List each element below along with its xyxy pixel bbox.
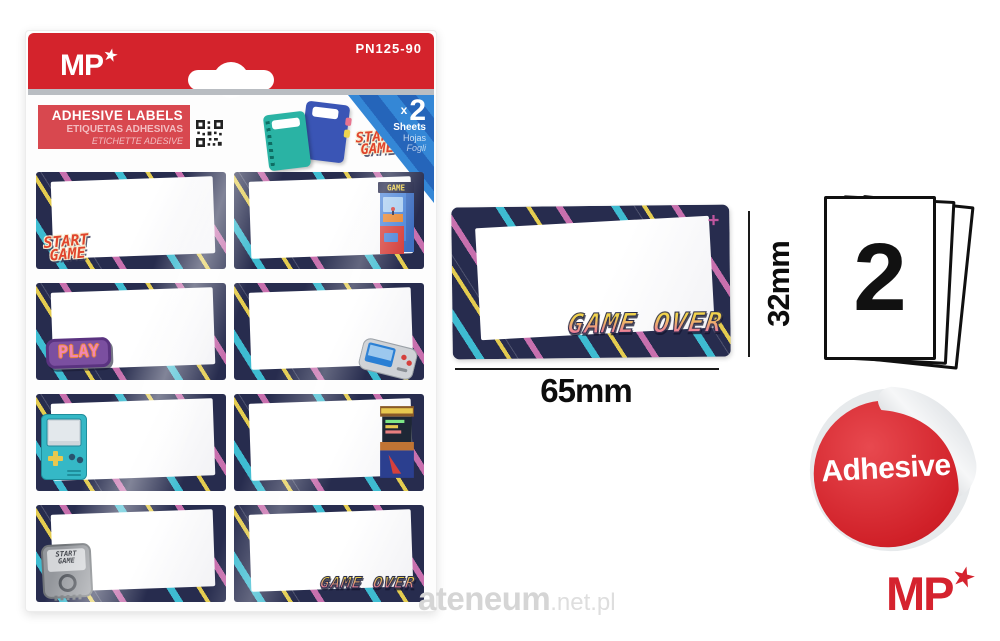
game-over-detail-logo: GAME OVER <box>565 308 724 341</box>
package: MP★ PN125-90 ADHESIVE LABELS ETIQUETAS A… <box>25 30 437 612</box>
plus-icon: + <box>708 210 720 233</box>
qr-code-icon <box>196 120 223 147</box>
header-band: MP★ PN125-90 <box>28 33 434 89</box>
game-over-label-logo: GAME OVER <box>319 573 417 592</box>
svg-text:GAME: GAME <box>387 184 406 193</box>
height-dimension-line <box>748 211 750 357</box>
label-game-over: GAME OVER <box>234 505 424 602</box>
gameboy-icon <box>41 414 87 480</box>
brand-text: MP <box>60 49 103 82</box>
label-play: PLAY <box>36 283 226 380</box>
title-it: ETICHETTE ADESIVE <box>38 136 183 146</box>
console-vents <box>54 594 82 600</box>
label-start-game: START GAME <box>36 172 226 269</box>
label-gameboy <box>36 394 226 491</box>
title-en: ADHESIVE LABELS <box>38 108 183 123</box>
product-photo: MP★ PN125-90 ADHESIVE LABELS ETIQUETAS A… <box>0 0 1000 641</box>
labels-sheet: START GAME GAME <box>36 172 424 602</box>
brand-star-icon: ★ <box>102 45 118 65</box>
width-dimension-line <box>455 368 719 370</box>
retro-console-icon: START GAME <box>41 543 94 600</box>
width-dimension: 65mm <box>452 372 720 410</box>
notebook-tab <box>343 129 350 138</box>
play-button-logo: PLAY <box>45 337 111 369</box>
label-arcade-blue: GAME <box>234 172 424 269</box>
sheet-count-icon: 2 <box>824 194 979 369</box>
sheet-count: x2 <box>348 97 426 124</box>
watermark-name: ateneum <box>418 580 550 617</box>
title-es: ETIQUETAS ADHESIVAS <box>38 124 183 135</box>
notebook-teal-icon <box>263 111 312 172</box>
console-button <box>58 574 77 593</box>
watermark: ateneum.net.pl <box>418 580 616 618</box>
logo-line2: GAME <box>49 246 90 262</box>
notebook-tab <box>345 117 352 126</box>
brand-text: MP <box>886 567 953 620</box>
play-text: PLAY <box>58 341 100 362</box>
brand-logo: MP★ <box>60 49 115 83</box>
height-dimension: 32mm <box>761 211 795 357</box>
console-text2: GAME <box>47 557 85 566</box>
times-sign: x <box>401 103 408 117</box>
package-fold-strip <box>28 89 434 95</box>
title-box: ADHESIVE LABELS ETIQUETAS ADHESIVAS ETIC… <box>38 105 190 149</box>
adhesive-badge: Adhesive <box>806 380 980 556</box>
product-code: PN125-90 <box>355 41 422 56</box>
notebook-label <box>312 106 339 119</box>
label-detail-view: + GAME OVER <box>451 205 731 360</box>
arcade-machine-icon <box>378 406 416 478</box>
console-plate: START GAME <box>47 548 86 572</box>
label-handheld <box>234 283 424 380</box>
sheet-front: 2 <box>824 196 936 360</box>
notebook-label <box>271 117 300 129</box>
arcade-machine-icon: GAME <box>374 182 418 258</box>
brand-star-icon: ★ <box>949 561 977 594</box>
label-console: START GAME <box>36 505 226 602</box>
start-game-label-logo: START GAME <box>43 233 90 263</box>
watermark-domain: .net.pl <box>550 589 615 616</box>
label-arcade-orange <box>234 394 424 491</box>
brand-logo-footer: MP★ <box>886 566 974 621</box>
sheet-count-number: 2 <box>853 230 906 326</box>
